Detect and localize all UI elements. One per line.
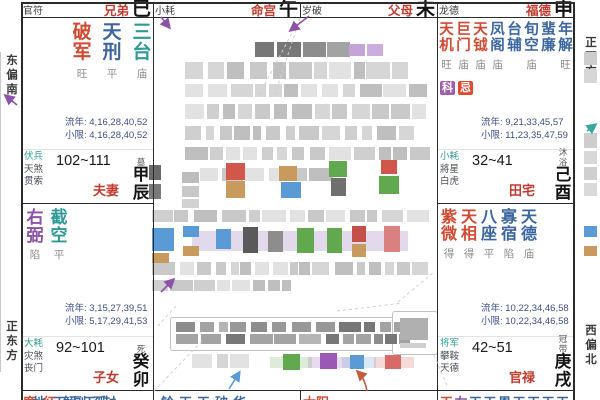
- star-status: 旺: [438, 57, 455, 72]
- censored-block: [412, 104, 427, 119]
- censored-block: [372, 104, 389, 119]
- censored-block: [273, 62, 287, 79]
- censored-block: [206, 126, 215, 140]
- censored-block: [314, 62, 327, 79]
- censored-block: [290, 262, 298, 275]
- censored-block: [185, 62, 203, 79]
- censored-block: [393, 147, 407, 160]
- censored-block: [255, 104, 270, 119]
- censored-block: [385, 262, 395, 275]
- star: 台辅: [506, 23, 523, 54]
- star-list: 右弼截空: [23, 209, 71, 244]
- censored-block: [249, 210, 260, 222]
- censored-block: [352, 226, 366, 242]
- sha-star: 灾煞: [24, 351, 43, 364]
- suiqian-star-label: 小耗: [155, 2, 175, 17]
- sha-star: 小耗: [440, 151, 459, 164]
- branch-column: 墓甲辰: [131, 158, 151, 203]
- palace-2: 天机巨门天钺凤阁台辅旬空蜚廉年解旺庙庙庙庙旺科忌流年: 9,21,33,45,5…: [437, 17, 575, 203]
- censored-block: [410, 147, 430, 160]
- censored-block: [255, 262, 270, 275]
- star: 截空: [47, 209, 71, 244]
- sha-star: 贯索: [24, 176, 43, 189]
- censored-block: [326, 334, 339, 344]
- palace-footer-strip: 将军攀鞍天德42~51官禄冠带庚戌: [437, 336, 575, 390]
- censored-block: [238, 104, 252, 119]
- censored-block: [268, 231, 283, 252]
- censored-block: [369, 262, 381, 275]
- star: 天机: [438, 23, 455, 54]
- star-status: 旺: [67, 66, 97, 81]
- censored-block: [255, 42, 274, 57]
- censored-block: [269, 84, 282, 97]
- star: 右弼: [23, 209, 47, 244]
- star: 紫微: [439, 209, 459, 243]
- censored-block: [303, 42, 326, 57]
- censored-block: [216, 229, 231, 249]
- censored-block: [226, 181, 245, 198]
- censored-block: [219, 322, 229, 332]
- star-status: [506, 57, 523, 72]
- censored-block: [272, 322, 287, 332]
- censored-block: [329, 62, 351, 79]
- ziwei-natal-chart: 东偏南 正东方 正西方 西偏北 官符兄弟巳小耗命宫午岁破父母未龙德福德申破军天刑…: [0, 0, 600, 400]
- censored-block: [231, 262, 239, 275]
- censored-block: [354, 62, 366, 79]
- censored-block: [339, 322, 361, 332]
- star-status: 陷: [499, 246, 519, 261]
- star-status: 旺: [557, 57, 574, 72]
- censored-block: [392, 62, 407, 79]
- censored-block: [185, 84, 203, 97]
- star-status: 庙: [519, 246, 539, 261]
- censored-block: [407, 210, 429, 222]
- censored-block: [400, 343, 426, 348]
- censored-block: [308, 210, 324, 222]
- censored-block: [315, 104, 330, 119]
- star: 寡宿: [499, 209, 519, 243]
- censored-block: [292, 322, 311, 332]
- star-status-row: 得得平陷庙: [439, 246, 539, 261]
- palace-footer-strip: 伏兵天煞贯索102~111夫妻墓甲辰: [21, 149, 153, 203]
- censored-block: [250, 62, 267, 79]
- censored-block: [385, 355, 401, 369]
- censored-block: [391, 104, 410, 119]
- sha-star-column: 小耗將星白虎: [440, 151, 459, 189]
- palace-name-label: 官禄: [509, 367, 535, 386]
- censored-block: [385, 334, 397, 344]
- badge-ke: 科: [440, 81, 455, 95]
- censored-block: [354, 147, 375, 160]
- censored-block: [208, 84, 227, 97]
- censored-block: [217, 280, 230, 291]
- sha-star: 白虎: [440, 176, 459, 189]
- earthly-branch-label: 申: [554, 2, 573, 17]
- censored-block: [194, 210, 218, 222]
- censored-block: [274, 334, 297, 344]
- censored-block: [399, 126, 415, 140]
- censored-block: [274, 104, 287, 119]
- censored-block: [584, 183, 597, 196]
- censored-block: [231, 84, 254, 97]
- censored-block: [227, 62, 244, 79]
- star-status-row: 旺庙庙庙庙旺: [438, 57, 574, 72]
- censored-block: [297, 228, 314, 253]
- earthly-branch-label: 未: [416, 2, 435, 17]
- censored-block: [374, 334, 384, 344]
- censored-block: [584, 226, 597, 237]
- censored-block: [327, 42, 350, 57]
- censored-block: [200, 322, 213, 332]
- liunian-years: 流年: 9,21,33,45,57: [481, 114, 563, 128]
- censored-block: [220, 126, 232, 140]
- censored-block: [230, 354, 249, 368]
- censored-block: [226, 334, 246, 344]
- star-status-row: 旺平庙: [67, 66, 157, 81]
- censored-block: [329, 161, 347, 177]
- liunian-years: 流年: 3,15,27,39,51: [65, 300, 147, 314]
- censored-block: [251, 322, 267, 332]
- censored-block: [345, 126, 357, 140]
- censored-block: [262, 210, 286, 222]
- censored-block: [284, 84, 298, 97]
- censored-block: [232, 280, 250, 291]
- censored-block: [182, 199, 199, 208]
- sha-star: 攀鞍: [440, 351, 459, 364]
- censored-block: [335, 262, 353, 275]
- censored-block: [326, 210, 345, 222]
- star: 天德: [519, 209, 539, 243]
- censored-block: [292, 147, 305, 160]
- censored-block: [343, 84, 355, 97]
- sha-star: 丧门: [24, 363, 43, 376]
- censored-block: [185, 147, 208, 160]
- censored-block: [185, 104, 204, 119]
- sha-star: 将军: [440, 338, 459, 351]
- clipped-bottom-stars: 天右天天恩天天天天: [440, 392, 571, 400]
- censored-block: [322, 126, 340, 140]
- badge-ji: 忌: [458, 81, 473, 95]
- censored-block: [289, 62, 311, 79]
- censored-block: [281, 182, 301, 198]
- censored-block: [279, 166, 297, 181]
- censored-block: [283, 354, 300, 370]
- star: 天钺: [472, 23, 489, 54]
- censored-block: [316, 322, 335, 332]
- censored-block: [397, 262, 410, 275]
- star: 蜚廉: [540, 23, 557, 54]
- stem-branch-label: 癸卯: [131, 354, 151, 389]
- censored-block: [282, 280, 290, 291]
- censored-block: [379, 147, 391, 160]
- censored-block: [245, 168, 263, 181]
- censored-block: [182, 186, 199, 197]
- censored-block: [356, 334, 371, 344]
- censored-block: [381, 160, 397, 174]
- censored-block: [357, 262, 366, 275]
- censored-block: [352, 104, 371, 119]
- censored-block: [222, 210, 246, 222]
- censored-block: [243, 147, 256, 160]
- censored-block: [350, 355, 364, 369]
- star: 天刑: [97, 23, 127, 63]
- age-range: 92~101: [56, 340, 105, 356]
- censored-block: [349, 44, 365, 56]
- star: 破军: [67, 23, 97, 63]
- palace-footer-strip: 小耗將星白虎32~41田宅沐浴己酉: [437, 149, 575, 203]
- sha-star-column: 大耗灾煞丧门: [24, 338, 43, 376]
- censored-block: [183, 246, 199, 256]
- branch-column: 冠带庚戌: [553, 335, 573, 389]
- censored-block: [208, 62, 224, 79]
- xiaoxian-years: 小限: 10,22,34,46,58: [481, 313, 569, 327]
- censored-block: [152, 228, 174, 251]
- censored-block: [217, 354, 228, 368]
- star-list: 天机巨门天钺凤阁台辅旬空蜚廉年解: [438, 23, 574, 54]
- censored-block: [299, 334, 321, 344]
- star: 凤阁: [489, 23, 506, 54]
- palace-header-strip: 岁破父母未: [300, 2, 437, 17]
- censored-block: [277, 42, 301, 57]
- censored-block: [384, 226, 400, 252]
- star-status: 平: [479, 246, 499, 261]
- censored-block: [327, 228, 342, 253]
- censored-block: [152, 210, 173, 222]
- censored-block: [152, 253, 169, 263]
- earthly-branch-label: 巳: [132, 2, 151, 17]
- censored-block: [273, 262, 287, 275]
- star-list: 破军天刑三台: [67, 23, 157, 63]
- censored-block: [152, 262, 175, 275]
- censored-block: [216, 262, 226, 275]
- censored-block: [332, 104, 347, 119]
- palace-4: 紫微天相八座寡宿天德得得平陷庙流年: 10,22,34,46,58小限: 10,…: [437, 203, 575, 390]
- palace-header-strip: 官符兄弟巳: [21, 2, 153, 17]
- censored-block: [412, 262, 428, 275]
- censored-block: [329, 147, 351, 160]
- censored-block: [170, 280, 193, 291]
- censored-block: [210, 147, 223, 160]
- star-status: 庙: [489, 57, 506, 72]
- changsheng-state: 沐浴: [553, 148, 573, 167]
- palace-footer-strip: 大耗灾煞丧门92~101子女死癸卯: [21, 336, 153, 390]
- xiaoxian-years: 小限: 4,16,28,40,52: [65, 127, 147, 141]
- star-status: 平: [47, 247, 71, 262]
- liunian-years: 流年: 10,22,34,46,58: [481, 300, 569, 314]
- censored-block: [253, 280, 265, 291]
- censored-block: [226, 147, 239, 160]
- censored-block: [584, 69, 597, 83]
- star: 年解: [557, 23, 574, 54]
- suiqian-star-label: 官符: [23, 2, 43, 17]
- censored-block: [200, 168, 218, 181]
- censored-block: [194, 280, 214, 291]
- star-status: 平: [97, 66, 127, 81]
- censored-block: [292, 104, 312, 119]
- censored-block: [299, 126, 319, 140]
- age-range: 102~111: [56, 153, 111, 169]
- star: 旬空: [523, 23, 540, 54]
- sihua-badges: 科忌: [440, 81, 476, 95]
- xiaoxian-years: 小限: 11,23,35,47,59: [481, 127, 568, 141]
- liunian-years: 流年: 4,16,28,40,52: [65, 114, 147, 128]
- censored-block: [584, 52, 597, 65]
- sha-star: 將星: [440, 164, 459, 177]
- censored-block: [584, 151, 597, 164]
- censored-block: [383, 84, 407, 97]
- palace-header-strip: 小耗命宫午: [153, 2, 300, 17]
- censored-block: [152, 280, 168, 291]
- censored-block: [382, 210, 403, 222]
- censored-block: [331, 178, 346, 196]
- xiaoxian-years: 小限: 5,17,29,41,53: [65, 313, 147, 327]
- stem-branch-label: 庚戌: [553, 354, 573, 389]
- censored-block: [176, 322, 195, 332]
- sha-star: 伏兵: [24, 151, 43, 164]
- star: 巨门: [455, 23, 472, 54]
- clipped-bottom-stars: 廉地红天解副天孤封: [23, 392, 113, 400]
- star-status: [540, 57, 557, 72]
- clipped-bottom-stars: 铃天天破华: [161, 392, 251, 400]
- palace-name-label: 田宅: [509, 180, 535, 199]
- censored-block: [367, 44, 383, 56]
- star-status: 庙: [523, 57, 540, 72]
- branch-column: 沐浴己酉: [553, 148, 573, 202]
- censored-block: [243, 227, 258, 253]
- censored-block: [240, 262, 251, 275]
- censored-block: [234, 126, 250, 140]
- censored-block: [250, 334, 273, 344]
- censored-block: [230, 322, 246, 332]
- suiqian-star-label: 岁破: [302, 2, 322, 17]
- stem-branch-label: 甲辰: [131, 167, 151, 202]
- censored-block: [290, 210, 305, 222]
- censored-block: [277, 147, 287, 160]
- censored-block: [262, 147, 273, 160]
- censored-block: [226, 163, 245, 180]
- star-status: 庙: [455, 57, 472, 72]
- age-range: 42~51: [472, 340, 513, 356]
- star-list: 紫微天相八座寡宿天德: [439, 209, 539, 243]
- censored-block: [584, 246, 597, 256]
- star-status: 庙: [472, 57, 489, 72]
- clipped-bottom-stars: 太阳: [303, 392, 329, 400]
- censored-block: [352, 244, 366, 257]
- sha-star: 天煞: [24, 164, 43, 177]
- censored-block: [301, 84, 317, 97]
- censored-block: [223, 104, 235, 119]
- censored-block: [180, 262, 194, 275]
- star-status: 得: [459, 246, 479, 261]
- age-range: 32~41: [472, 153, 513, 169]
- censored-block: [207, 104, 219, 119]
- star: 天相: [459, 209, 479, 243]
- censored-block: [299, 262, 310, 275]
- censored-block: [400, 318, 428, 340]
- sha-star: 大耗: [24, 338, 43, 351]
- star-status: 得: [439, 246, 459, 261]
- censored-block: [409, 84, 427, 97]
- stem-branch-label: 己酉: [553, 167, 573, 202]
- censored-block: [350, 210, 365, 222]
- censored-block: [379, 176, 399, 194]
- censored-block: [255, 84, 266, 97]
- censored-block: [364, 322, 375, 332]
- sha-star: 天德: [440, 363, 459, 376]
- branch-column: 死癸卯: [131, 345, 151, 390]
- star-status: 陷: [23, 247, 47, 262]
- censored-block: [360, 84, 381, 97]
- sha-star-column: 将军攀鞍天德: [440, 338, 459, 376]
- changsheng-state: 冠带: [553, 335, 573, 354]
- sha-star-column: 伏兵天煞贯索: [24, 151, 43, 189]
- censored-block: [174, 210, 187, 222]
- star-status-row: 陷平: [23, 247, 71, 262]
- censored-block: [320, 353, 337, 369]
- censored-block: [380, 322, 390, 332]
- censored-block: [343, 334, 354, 344]
- palace-header-strip: 龙德福德申: [437, 2, 575, 17]
- palace-3: 右弼截空陷平流年: 3,15,27,39,51小限: 5,17,29,41,53…: [21, 203, 153, 390]
- censored-block: [362, 126, 372, 140]
- censored-block: [266, 126, 280, 140]
- censored-block: [183, 226, 199, 237]
- censored-block: [268, 280, 280, 291]
- censored-block: [366, 62, 390, 79]
- censored-block: [310, 147, 325, 160]
- palace-name-label: 子女: [93, 367, 119, 386]
- censored-block: [286, 126, 295, 140]
- palace-1: 破军天刑三台旺平庙流年: 4,16,28,40,52小限: 4,16,28,40…: [21, 17, 153, 203]
- star: 八座: [479, 209, 499, 243]
- censored-block: [367, 210, 378, 222]
- censored-block: [185, 126, 201, 140]
- palace-name-label: 夫妻: [93, 180, 119, 199]
- censored-block: [584, 133, 597, 148]
- earthly-branch-label: 午: [279, 2, 298, 17]
- censored-block: [253, 126, 262, 140]
- censored-block: [176, 334, 198, 344]
- censored-block: [322, 84, 338, 97]
- censored-block: [192, 354, 212, 368]
- censored-block: [201, 334, 221, 344]
- suiqian-star-label: 龙德: [439, 2, 459, 17]
- censored-block: [584, 167, 597, 180]
- censored-block: [182, 172, 199, 183]
- censored-block: [377, 126, 396, 140]
- censored-block: [312, 262, 330, 275]
- censored-block: [197, 262, 211, 275]
